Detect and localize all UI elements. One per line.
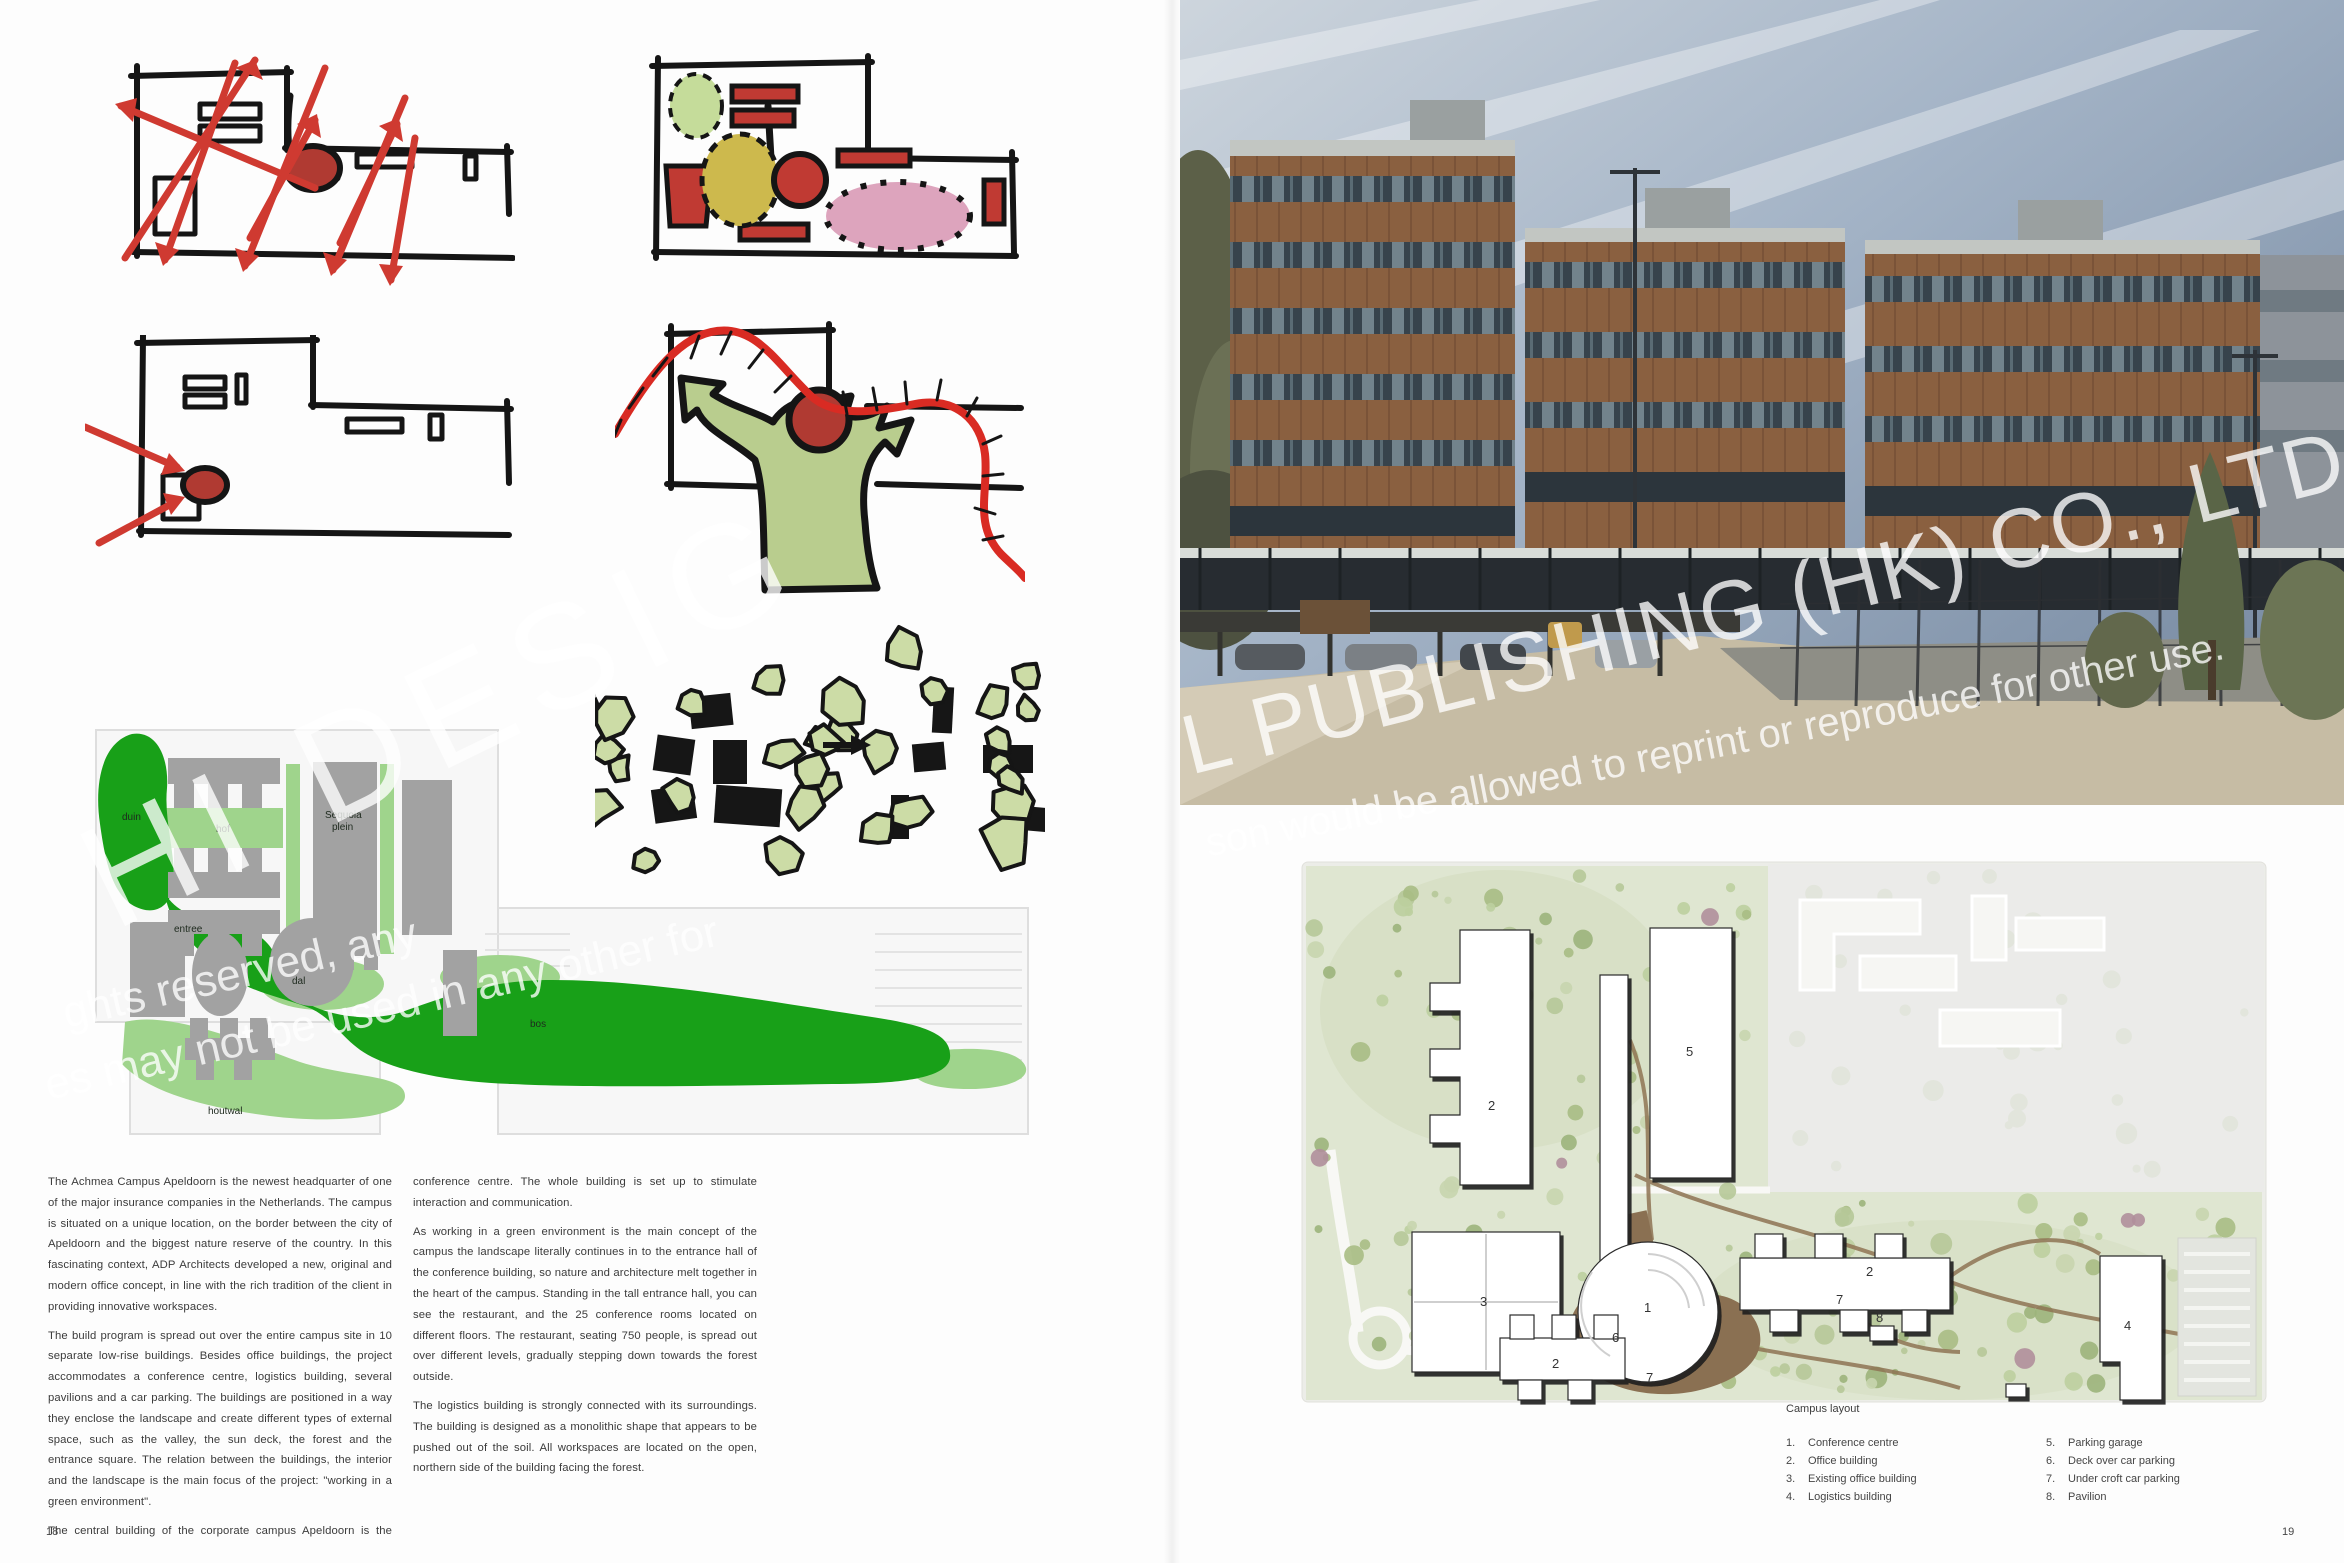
article-column-2: conference centre. The whole building is…: [413, 1172, 757, 1487]
paragraph: As working in a green environment is the…: [413, 1222, 757, 1388]
page-gutter: [1164, 0, 1180, 1563]
concept-sketch-arrows-in: [85, 335, 515, 550]
legend-item: Office building: [1808, 1452, 1878, 1470]
num-existing-office: 3: [1480, 1294, 1487, 1309]
label-duin: duin: [122, 812, 141, 823]
campus-layout-legend: Campus layout 1.Conference centre 2.Offi…: [1786, 1400, 2306, 1506]
num-undercroft-2: 7: [1836, 1292, 1843, 1307]
num-deck-parking: 6: [1612, 1330, 1619, 1345]
campus-master-plan: 1 2 2 2 3 4 5 6 7 7 8: [1300, 860, 2270, 1405]
legend-column-left: 1.Conference centre 2.Office building 3.…: [1786, 1434, 2046, 1506]
num-office-2: 2: [1866, 1264, 1873, 1279]
legend-title: Campus layout: [1786, 1400, 2306, 1418]
legend-item: Logistics building: [1808, 1488, 1892, 1506]
paragraph: The central building of the corporate ca…: [48, 1521, 392, 1542]
paragraph: The Achmea Campus Apeldoorn is the newes…: [48, 1172, 392, 1318]
forklift: [1548, 622, 1582, 648]
legend-item: Under croft car parking: [2068, 1470, 2180, 1488]
num-conference-centre: 1: [1644, 1300, 1651, 1315]
landscape-site-plan: duin hof Sequoia plein entree dal bos ho…: [70, 722, 1040, 1160]
guardrail: [1180, 548, 2344, 558]
red-arrows: [85, 427, 185, 543]
legend-column-right: 5.Parking garage 6.Deck over car parking…: [2046, 1434, 2180, 1506]
num-logistics: 4: [2124, 1318, 2131, 1333]
num-pavilion: 8: [1876, 1310, 1883, 1325]
wood-shed: [1300, 600, 1370, 634]
label-houtwal: houtwal: [208, 1106, 242, 1117]
concept-sketch-green-arrow: [615, 292, 1025, 594]
num-office-1: 2: [1488, 1098, 1495, 1113]
legend-item: Pavilion: [2068, 1488, 2107, 1506]
parking-garage-area: [2178, 1238, 2256, 1396]
concept-sketch-program: [640, 48, 1020, 266]
paragraph: conference centre. The whole building is…: [413, 1172, 757, 1214]
label-entree: entree: [174, 924, 203, 935]
book-spread: duin hof Sequoia plein entree dal bos ho…: [0, 0, 2344, 1563]
concept-sketch-arrows-out: [85, 28, 515, 363]
paragraph: The logistics building is strongly conne…: [413, 1396, 757, 1479]
label-bos: bos: [530, 1019, 546, 1030]
num-parking-garage: 5: [1686, 1044, 1693, 1059]
campus-photo: [1180, 0, 2344, 805]
legend-item: Existing office building: [1808, 1470, 1917, 1488]
legend-item: Conference centre: [1808, 1434, 1899, 1452]
num-undercroft-1: 7: [1646, 1370, 1653, 1385]
legend-item: Deck over car parking: [2068, 1452, 2175, 1470]
num-office-3: 2: [1552, 1356, 1559, 1371]
label-sequoia-2: plein: [332, 822, 353, 833]
label-sequoia: Sequoia: [325, 810, 362, 821]
article-column-1: The Achmea Campus Apeldoorn is the newes…: [48, 1172, 392, 1550]
page-number-left: 18: [46, 1526, 58, 1538]
page-number-right: 19: [2282, 1526, 2294, 1538]
label-dal: dal: [292, 976, 305, 987]
label-hof: hof: [216, 824, 230, 835]
legend-item: Parking garage: [2068, 1434, 2143, 1452]
paragraph: The build program is spread out over the…: [48, 1326, 392, 1513]
